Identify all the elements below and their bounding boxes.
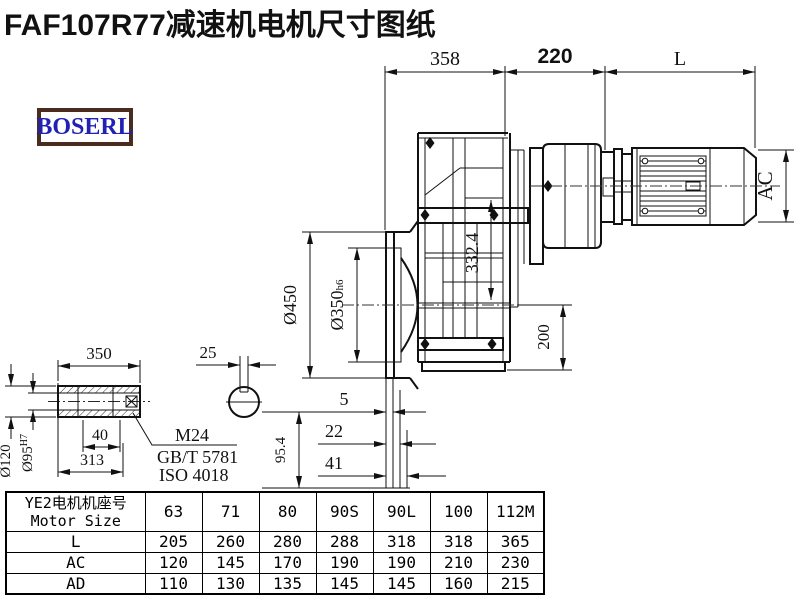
cell-L-90s: 288: [316, 531, 373, 552]
cell-L-80: 280: [259, 531, 316, 552]
dim-label-40: 40: [92, 427, 108, 444]
table-col-63: 63: [145, 492, 202, 531]
cell-AD-80: 135: [259, 573, 316, 594]
table-col-90l: 90L: [373, 492, 430, 531]
table-col-100: 100: [430, 492, 487, 531]
row-label-AD: AD: [6, 573, 145, 594]
dim-label-5: 5: [340, 389, 349, 409]
dim-label-spigot: Ø350h6: [327, 279, 347, 331]
dim-label-22: 22: [325, 421, 343, 441]
cell-AC-71: 145: [202, 552, 259, 573]
motor-size-table: YE2电机机座号 Motor Size 63 71 80 90S 90L 100…: [5, 491, 545, 595]
cell-AC-90l: 190: [373, 552, 430, 573]
table-col-90s: 90S: [316, 492, 373, 531]
table-row-AD: AD 110 130 135 145 145 160 215: [6, 573, 544, 594]
dim-label-358: 358: [430, 48, 460, 70]
cell-L-90l: 318: [373, 531, 430, 552]
table-col-80: 80: [259, 492, 316, 531]
cell-AC-90s: 190: [316, 552, 373, 573]
standard-label-iso: ISO 4018: [159, 465, 229, 485]
dim-label-od120: Ø120: [0, 444, 14, 477]
cell-AD-63: 110: [145, 573, 202, 594]
table-row-L: L 205 260 280 288 318 318 365: [6, 531, 544, 552]
bolt-marks: [421, 137, 553, 350]
row-label-L: L: [6, 531, 145, 552]
cell-AD-112m: 215: [487, 573, 544, 594]
cell-AD-100: 160: [430, 573, 487, 594]
dim-label-313: 313: [80, 452, 104, 469]
cell-AD-90l: 145: [373, 573, 430, 594]
table-col-71: 71: [202, 492, 259, 531]
cell-AC-80: 170: [259, 552, 316, 573]
dim-label-bore-tol: H7: [19, 434, 30, 446]
cell-L-63: 205: [145, 531, 202, 552]
dim-954: [262, 412, 320, 488]
table-header-en: Motor Size: [7, 512, 145, 530]
cell-AC-63: 120: [145, 552, 202, 573]
bell-adapter: [510, 144, 614, 307]
thread-label-m24: M24: [175, 425, 209, 445]
table-header-motor-size: YE2电机机座号 Motor Size: [6, 492, 145, 531]
table-header-cn: YE2电机机座号: [7, 494, 145, 512]
dim-label-954: 95.4: [273, 436, 289, 463]
cell-L-100: 318: [430, 531, 487, 552]
page: FAF107R77减速机电机尺寸图纸 BOSERL: [0, 0, 800, 596]
dim-label-41: 41: [325, 453, 343, 473]
dim-label-flange-od: Ø450: [280, 285, 300, 325]
cell-L-71: 260: [202, 531, 259, 552]
cell-L-112m: 365: [487, 531, 544, 552]
dim-label-332: 332.4: [462, 233, 482, 274]
row-label-AC: AC: [6, 552, 145, 573]
dim-label-ac: AC: [753, 171, 777, 200]
cell-AC-112m: 230: [487, 552, 544, 573]
centerlines: [342, 186, 780, 305]
table-row-AC: AC 120 145 170 190 190 210 230: [6, 552, 544, 573]
dim-label-350: 350: [86, 344, 112, 363]
dim-label-L: L: [674, 48, 686, 70]
cell-AD-71: 130: [202, 573, 259, 594]
table-col-112m: 112M: [487, 492, 544, 531]
standard-label-gbt: GB/T 5781: [157, 447, 238, 467]
dim-label-200: 200: [534, 324, 553, 350]
cell-AC-100: 210: [430, 552, 487, 573]
dim-label-bore95: Ø95H7: [19, 434, 36, 472]
cell-AD-90s: 145: [316, 573, 373, 594]
dim-label-25: 25: [200, 343, 217, 362]
dim-label-spigot-tol: h6: [334, 279, 346, 291]
dim-label-220: 220: [537, 45, 572, 68]
